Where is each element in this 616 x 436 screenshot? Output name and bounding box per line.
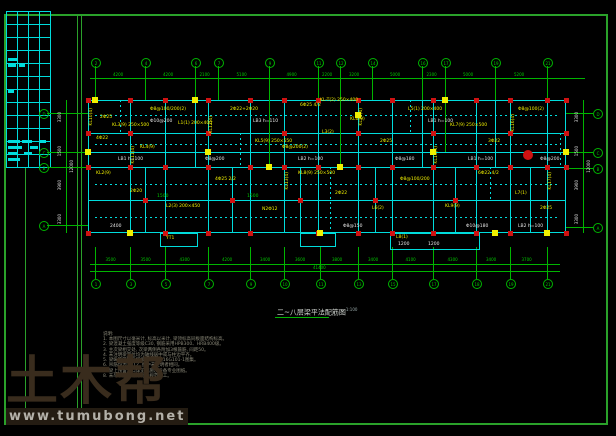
dim-text-top: 4900 [287, 73, 297, 77]
dim-text-top: 2200 [322, 73, 332, 77]
grid-stem-right [566, 227, 593, 228]
drawing-title-underline [275, 317, 329, 318]
dim-line-right [583, 100, 584, 233]
grid-bubble-bottom: 1 [91, 279, 101, 289]
dim-tick [392, 261, 393, 267]
beam-label: L1(1) 200×400 [178, 122, 212, 127]
beam-label: KL16(4) [512, 114, 517, 132]
beam-label: KL5(9) 250×550 [255, 140, 292, 145]
wall-line-h [88, 200, 566, 201]
node-marker [85, 149, 91, 155]
grid-stem-right [566, 152, 593, 153]
grid-stem-left [47, 225, 88, 226]
beam-label: Φ8@200 [540, 158, 560, 163]
titleblock-row-line [6, 50, 51, 51]
dim-tick [547, 261, 548, 267]
dim-tick [250, 261, 251, 267]
grid-bubble-bottom: 15 [388, 279, 398, 289]
beam-label: Φ8@150 [343, 225, 363, 230]
column-marker [564, 131, 569, 136]
beam-label: KL17(4) [549, 172, 554, 190]
grid-bubble-right: A [593, 223, 603, 233]
dim-tick [433, 261, 434, 267]
column-marker [282, 165, 287, 170]
titleblock-text-blob [8, 140, 20, 143]
dim-tick [547, 75, 548, 81]
grid-bubble-top: 7 [214, 58, 224, 68]
node-marker [337, 164, 343, 170]
column-marker [431, 165, 436, 170]
grid-bubble-left: D [39, 109, 49, 119]
dim-text-top: 4200 [163, 73, 173, 77]
grid-bubble-top: 14 [368, 58, 378, 68]
grid-bubble-right: C [593, 148, 603, 158]
dim-text-bottom: 3500 [106, 258, 116, 262]
grid-bubble-top: 21 [543, 58, 553, 68]
dim-text-top: 4200 [113, 73, 123, 77]
beam-label: 1500 [157, 195, 168, 200]
node-marker [92, 97, 98, 103]
grid-line-inside [445, 66, 446, 152]
beam-label: LB1 h=100 [428, 120, 453, 125]
node-marker [192, 97, 198, 103]
grid-bubble-top: 2 [91, 58, 101, 68]
grid-bubble-bottom: 13 [354, 279, 364, 289]
dim-tick [284, 261, 285, 267]
grid-bubble-bottom: 11 [316, 279, 326, 289]
beam-label: KL8(9) 250×500 [298, 172, 335, 177]
column-marker [373, 198, 378, 203]
beam-label: Φ8@200 [205, 158, 225, 163]
titleblock-row-line [6, 128, 51, 129]
watermark-brand: 土木帮 [6, 356, 176, 408]
column-marker [564, 231, 569, 236]
titleblock-row-line [6, 11, 51, 12]
beam-label: 2Φ25 [100, 116, 112, 121]
grid-stem-top [372, 66, 373, 100]
dim-text-overall: 41400 [313, 266, 326, 270]
grid-stem-top [422, 66, 423, 100]
beam-label: Φ10@200 [150, 120, 172, 125]
grid-bubble-left: B [39, 163, 49, 173]
beam-label: L6(2) [372, 207, 384, 212]
dim-tick [95, 261, 96, 267]
titleblock-text-blob [8, 64, 16, 67]
column-marker [545, 165, 550, 170]
column-marker [508, 98, 513, 103]
column-marker [474, 231, 479, 236]
grid-bubble-bottom: 18 [472, 279, 482, 289]
column-marker [431, 131, 436, 136]
dim-text-bottom: 3700 [522, 258, 532, 262]
grid-bubble-top: 16 [418, 58, 428, 68]
dim-tick [165, 261, 166, 267]
dim-text-bottom: 3500 [141, 258, 151, 262]
grid-bubble-top: 4 [141, 58, 151, 68]
node-marker [127, 230, 133, 236]
column-marker [508, 165, 513, 170]
node-marker [266, 164, 272, 170]
grid-bubble-right: D [593, 109, 603, 119]
column-marker [86, 231, 91, 236]
node-marker [563, 149, 569, 155]
dim-text-top: 2100 [200, 73, 210, 77]
beam-label: L8(1) [396, 236, 408, 241]
grid-bubble-bottom: 7 [204, 279, 214, 289]
column-marker [564, 98, 569, 103]
hidden-beam-v [330, 167, 331, 233]
titleblock-row-line [6, 76, 51, 77]
grid-stem-top [218, 66, 219, 100]
dim-tick [95, 75, 96, 81]
node-marker [205, 149, 211, 155]
beam-label: 6Φ25 4/2 [300, 104, 321, 109]
column-marker [474, 165, 479, 170]
titleblock-row-line [6, 102, 51, 103]
beam-label: 2Φ22+2Φ20 [230, 108, 258, 113]
column-marker [431, 98, 436, 103]
column-marker [508, 231, 513, 236]
grid-bubble-bottom: 17 [429, 279, 439, 289]
beam-label: 1500 [247, 195, 258, 200]
dim-text-side: 3300 [58, 112, 62, 122]
drawing-scale: 1:100 [346, 307, 358, 312]
beam-label: LB2 h=100 [518, 225, 543, 230]
dim-tick [422, 75, 423, 81]
column-marker [230, 198, 235, 203]
dim-text-top: 5000 [390, 73, 400, 77]
column-marker [508, 131, 513, 136]
grid-bubble-bottom: 21 [543, 279, 553, 289]
grid-stem-top [95, 66, 96, 100]
column-marker [128, 98, 133, 103]
column-marker [474, 98, 479, 103]
column-marker [248, 231, 253, 236]
column-marker [356, 165, 361, 170]
grid-bubble-top: 19 [491, 58, 501, 68]
grid-bubble-bottom: 5 [161, 279, 171, 289]
grid-bubble-top: 9 [265, 58, 275, 68]
beam-label: LB1 h=100 [468, 158, 493, 163]
beam-label: KL-T(2) 250×400 [320, 99, 358, 104]
beam-label: 2400 [110, 225, 121, 230]
dim-text-top: 5000 [463, 73, 473, 77]
titleblock-row-line [6, 24, 51, 25]
beam-label: KL2(9) [96, 172, 111, 177]
beam-label: KL13(4) [286, 172, 291, 190]
column-marker [86, 165, 91, 170]
dim-tick [358, 261, 359, 267]
grid-line-inside [269, 66, 270, 165]
beam-label: KL9(9) [445, 205, 460, 210]
dim-tick [130, 261, 131, 267]
hidden-beam-h [95, 217, 560, 218]
beam-label: Φ8@100/200(2) [150, 108, 186, 113]
dim-tick [476, 261, 477, 267]
beam-label: KL4(9) [140, 146, 155, 151]
beam-label: 4Φ25 2/2 [215, 178, 236, 183]
titleblock-text-blob [22, 140, 32, 143]
grid-bubble-top: 17 [441, 58, 451, 68]
grid-bubble-top: 11 [314, 58, 324, 68]
column-marker [206, 98, 211, 103]
beam-label: Φ8@180 [395, 158, 415, 163]
dim-text-bottom: 3400 [486, 258, 496, 262]
dim-text-side: 12000 [587, 160, 591, 173]
sheet-border-top [4, 14, 608, 16]
grid-stem-top [318, 66, 319, 100]
detail-circle-marker [523, 150, 533, 160]
beam-label: YT1 [166, 237, 174, 242]
dim-tick [372, 75, 373, 81]
column-marker [248, 165, 253, 170]
titleblock-text-blob [8, 90, 14, 93]
wall-line-h [88, 152, 566, 153]
dim-line-total [90, 271, 560, 272]
column-marker [564, 165, 569, 170]
column-marker [390, 231, 395, 236]
column-marker [248, 98, 253, 103]
beam-label: KL3(9) 250×500 [112, 124, 149, 129]
dim-text-bottom: 3600 [295, 258, 305, 262]
node-marker [317, 230, 323, 236]
column-marker [356, 131, 361, 136]
grid-stem-left [47, 152, 88, 153]
dim-text-bottom: 4300 [448, 258, 458, 262]
node-marker [492, 230, 498, 236]
grid-stem-top [495, 66, 496, 100]
hidden-beam-v [240, 133, 241, 167]
grid-bubble-bottom: 19 [506, 279, 516, 289]
dim-tick [145, 75, 146, 81]
titleblock-text-blob [8, 146, 22, 149]
dim-text-bottom: 3400 [368, 258, 378, 262]
node-marker [442, 97, 448, 103]
dim-line-left [66, 100, 67, 233]
drawing-title: 二~八层梁平法配筋图1:100 [277, 307, 357, 317]
dim-text-side: 3900 [575, 180, 579, 190]
column-marker [356, 231, 361, 236]
drawing-title-text: 二~八层梁平法配筋图 [277, 308, 346, 316]
grid-stem-left [47, 167, 88, 168]
grid-stem-right [566, 113, 593, 114]
dim-tick [510, 261, 511, 267]
grid-stem-top [195, 66, 196, 100]
column-marker [128, 165, 133, 170]
beam-label: L3(2) [322, 131, 334, 136]
titleblock-text-blob [8, 152, 18, 155]
beam-label: 1200 [428, 243, 439, 248]
node-marker [544, 230, 550, 236]
column-marker [86, 98, 91, 103]
grid-bubble-left: A [39, 221, 49, 231]
dim-tick [195, 75, 196, 81]
grid-bubble-top: 12 [336, 58, 346, 68]
dim-text-top: 2300 [427, 73, 437, 77]
grid-stem-left [47, 113, 88, 114]
dim-text-side: 3900 [58, 180, 62, 190]
column-marker [316, 165, 321, 170]
beam-label: Φ8@200(2) [282, 146, 308, 151]
beam-label: 2Φ22 [335, 192, 347, 197]
grid-line-inside [340, 66, 341, 165]
column-marker [206, 231, 211, 236]
dim-tick [208, 261, 209, 267]
dim-text-side: 1500 [58, 146, 62, 156]
wall-line-h [88, 167, 566, 168]
beam-label: Φ10@180 [466, 225, 488, 230]
dim-text-bottom: 4200 [222, 258, 232, 262]
beam-label: L5(1) 200×400 [408, 108, 442, 113]
dim-text-bottom: 4300 [180, 258, 190, 262]
beam-label: L7(1) [515, 192, 527, 197]
column-marker [431, 231, 436, 236]
column-marker [298, 198, 303, 203]
beam-label: Φ8@100/200 [400, 178, 430, 183]
beam-label: 1200 [398, 243, 409, 248]
titleblock-text-blob [24, 152, 32, 155]
dim-tick [495, 75, 496, 81]
titleblock-text-blob [19, 64, 25, 67]
dim-text-side: 1500 [575, 146, 579, 156]
dim-text-bottom: 4100 [406, 258, 416, 262]
titleblock-text-blob [8, 158, 20, 161]
beam-label: 2Φ25 [540, 207, 552, 212]
dim-text-bottom: 3800 [332, 258, 342, 262]
grid-bubble-bottom: 9 [246, 279, 256, 289]
dim-tick [218, 75, 219, 81]
beam-label: KL14(4) [360, 108, 365, 126]
titleblock-row-line [6, 37, 51, 38]
dim-text-side: 3300 [575, 214, 579, 224]
beam-label: KL7(9) 250×500 [450, 124, 487, 129]
dim-text-bottom: 3400 [260, 258, 270, 262]
grid-stem-top [547, 66, 548, 100]
beam-label: 6Φ22 4/2 [478, 172, 499, 177]
column-marker [282, 131, 287, 136]
column-marker [545, 98, 550, 103]
dim-text-side: 3300 [58, 214, 62, 224]
beam-label: 2Φ25 [380, 140, 392, 145]
column-marker [390, 98, 395, 103]
beam-label: 3Φ22 [488, 140, 500, 145]
titleblock-text-blob [40, 140, 46, 143]
column-marker [453, 198, 458, 203]
column-marker [206, 165, 211, 170]
watermark-url: www.tumubong.net [6, 408, 188, 425]
column-marker [143, 198, 148, 203]
hidden-beam-v [410, 100, 411, 133]
column-marker [163, 165, 168, 170]
beam-label: LB1 h=100 [118, 158, 143, 163]
dim-text-top: 5200 [514, 73, 524, 77]
dim-tick [318, 75, 319, 81]
beam-label: LB2 h=100 [298, 158, 323, 163]
titleblock-text-blob [8, 58, 18, 61]
beam-label: LB3 h=110 [253, 120, 278, 125]
dim-text-side: 12000 [70, 160, 74, 173]
hidden-beam-h [95, 115, 560, 116]
grid-stem-top [145, 66, 146, 100]
beam-label: Φ8@100(2) [518, 108, 544, 113]
sheet-border-right [606, 14, 608, 425]
column-marker [128, 131, 133, 136]
column-marker [390, 165, 395, 170]
beam-label: KL15(4) [435, 146, 440, 164]
beam-label: KL10(4) [90, 108, 95, 126]
grid-bubble-top: 6 [191, 58, 201, 68]
hidden-beam-v [560, 133, 561, 167]
beam-label: N2Φ12 [262, 208, 278, 213]
beam-label: KL12(4) [210, 116, 215, 134]
grid-bubble-bottom: 3 [126, 279, 136, 289]
beam-label: 4Φ22 [96, 137, 108, 142]
column-marker [163, 98, 168, 103]
beam-label: 2Φ20 [130, 190, 142, 195]
column-marker [86, 131, 91, 136]
column-marker [282, 98, 287, 103]
dim-text-top: 3200 [349, 73, 359, 77]
beam-label: L2(3) 200×450 [166, 205, 200, 210]
grid-bubble-left: C [39, 148, 49, 158]
dim-line-top [90, 78, 585, 79]
dim-text-top: 5100 [237, 73, 247, 77]
grid-bubble-bottom: 10 [280, 279, 290, 289]
titleblock-text-blob [30, 146, 38, 149]
cad-drawing-canvas: 2467911121416171921420042002100510049002… [0, 0, 616, 436]
grid-bubble-right: B [593, 164, 603, 174]
dim-text-side: 3300 [575, 112, 579, 122]
